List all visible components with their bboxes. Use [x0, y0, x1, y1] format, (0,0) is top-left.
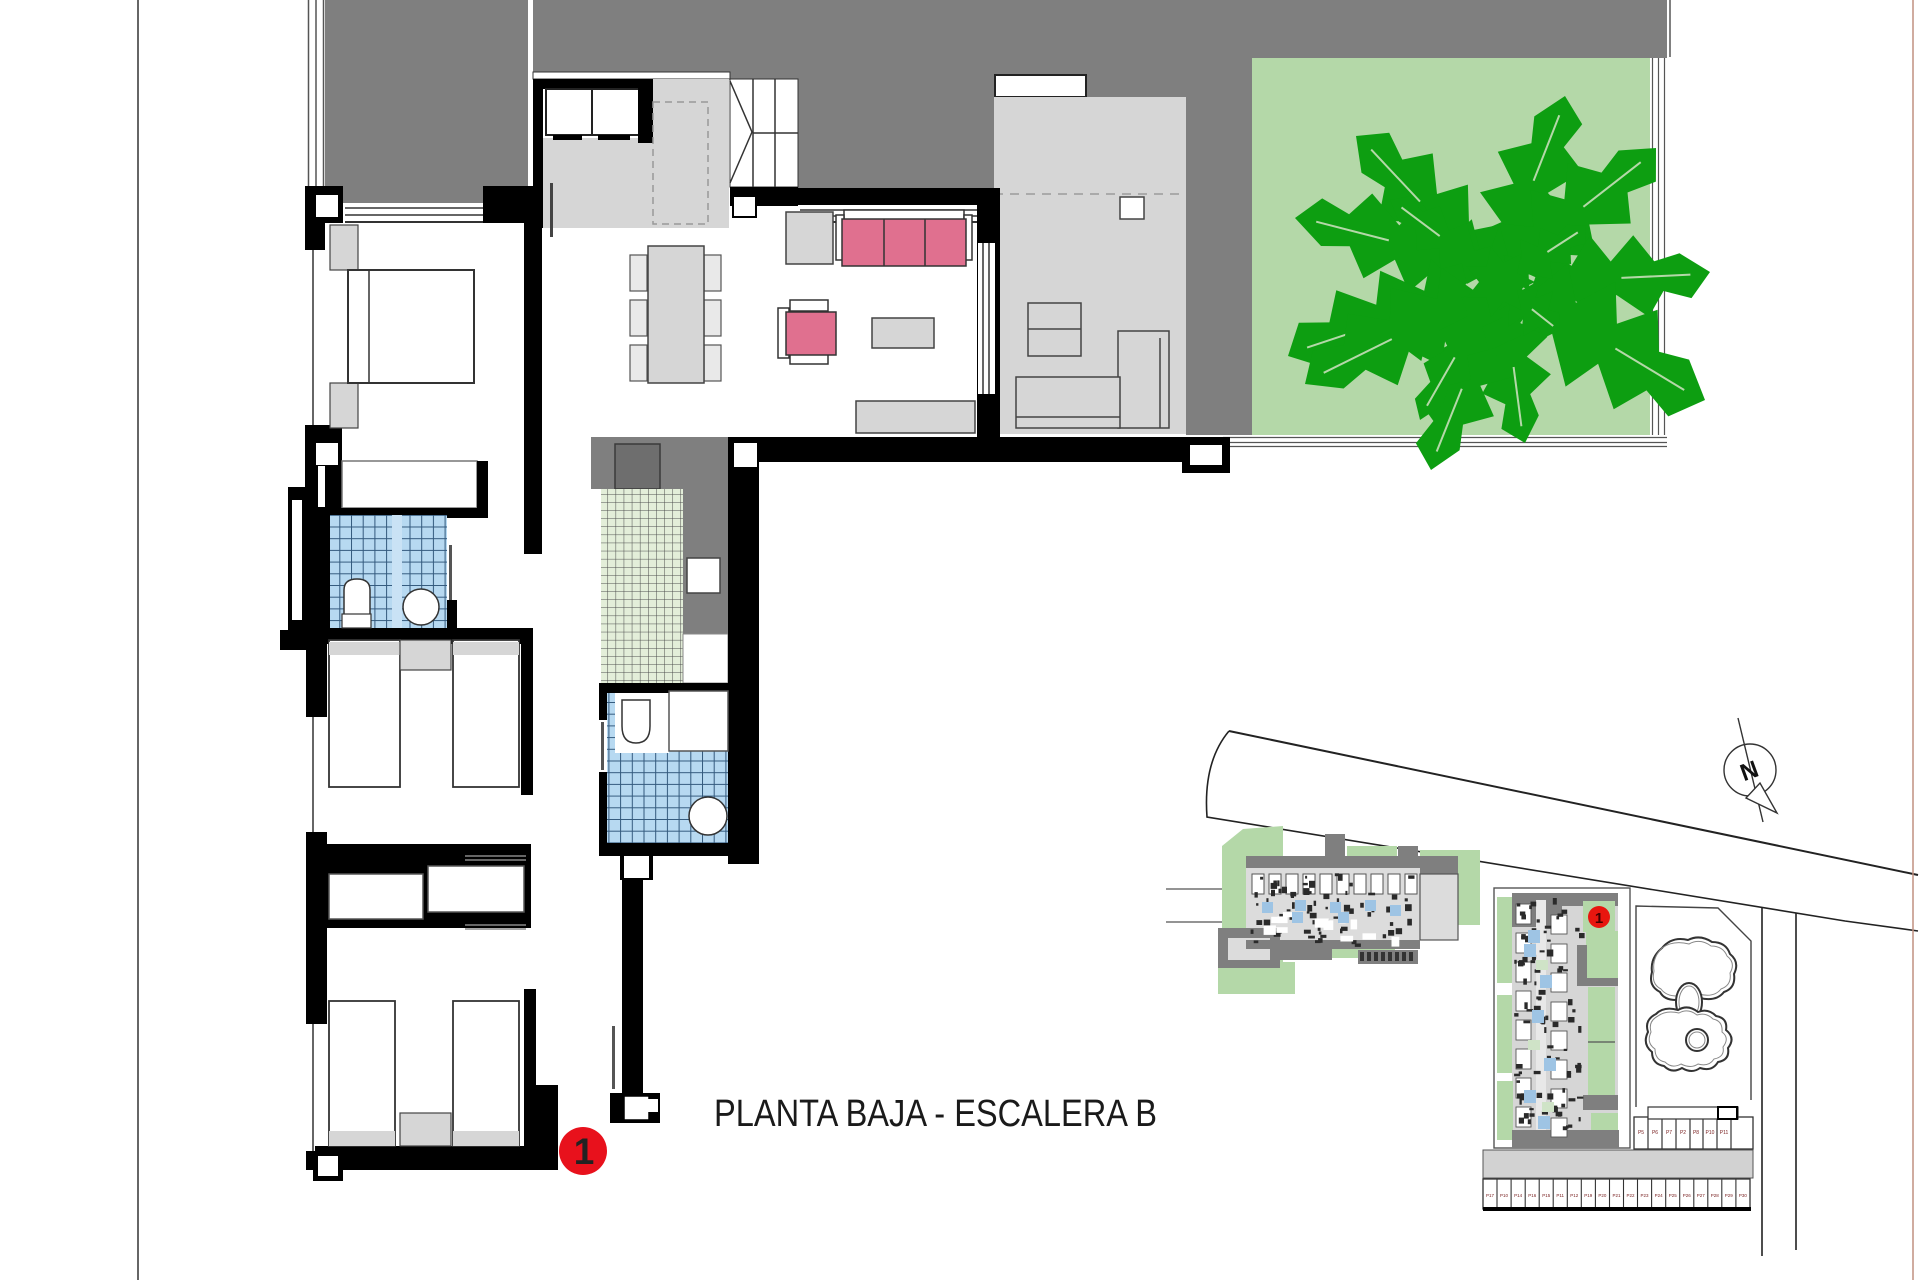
- svg-text:P6: P6: [1652, 1130, 1658, 1136]
- svg-text:P17: P17: [1486, 1193, 1495, 1198]
- svg-text:P12: P12: [1570, 1193, 1579, 1198]
- svg-text:P22: P22: [1626, 1193, 1635, 1198]
- svg-text:P10: P10: [1706, 1130, 1715, 1136]
- svg-text:P11: P11: [1556, 1193, 1564, 1198]
- svg-text:P28: P28: [1711, 1193, 1720, 1198]
- svg-text:P29: P29: [1725, 1193, 1734, 1198]
- svg-text:P21: P21: [1612, 1193, 1621, 1198]
- svg-text:P30: P30: [1739, 1193, 1748, 1198]
- svg-text:1: 1: [574, 1131, 595, 1172]
- svg-text:P5: P5: [1638, 1130, 1644, 1136]
- svg-text:P20: P20: [1598, 1193, 1607, 1198]
- svg-text:P10: P10: [1500, 1193, 1509, 1198]
- svg-text:P24: P24: [1655, 1193, 1664, 1198]
- svg-text:P2: P2: [1680, 1130, 1686, 1136]
- svg-text:P11: P11: [1720, 1130, 1729, 1136]
- svg-text:1: 1: [1595, 910, 1603, 927]
- svg-text:P26: P26: [1683, 1193, 1692, 1198]
- svg-text:P27: P27: [1697, 1193, 1706, 1198]
- svg-text:P23: P23: [1640, 1193, 1649, 1198]
- svg-text:PLANTA BAJA - ESCALERA B: PLANTA BAJA - ESCALERA B: [714, 1093, 1157, 1135]
- svg-text:P25: P25: [1669, 1193, 1678, 1198]
- svg-text:P16: P16: [1528, 1193, 1537, 1198]
- svg-text:P15: P15: [1542, 1193, 1551, 1198]
- svg-text:P7: P7: [1666, 1130, 1672, 1136]
- svg-text:P19: P19: [1584, 1193, 1593, 1198]
- svg-text:P8: P8: [1693, 1130, 1699, 1136]
- svg-text:P14: P14: [1514, 1193, 1523, 1198]
